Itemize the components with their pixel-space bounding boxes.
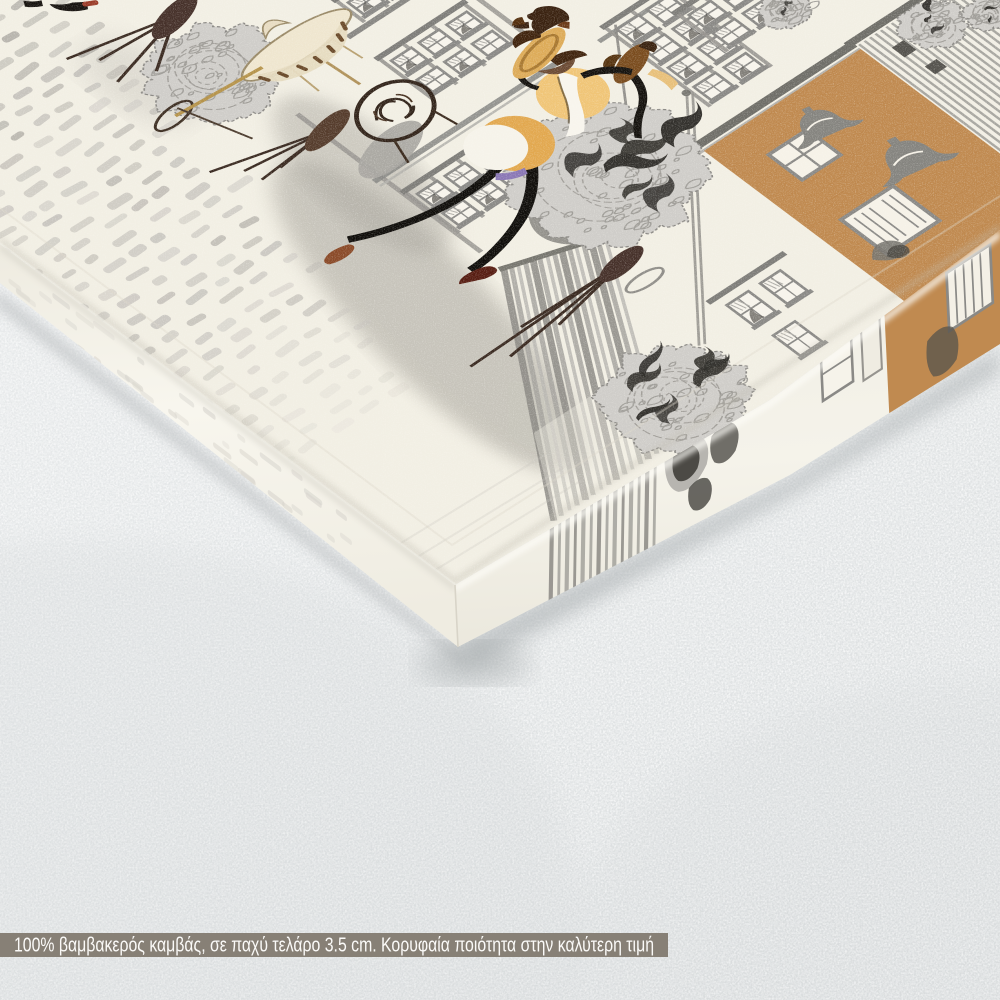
svg-text:100% βαμβακερός καμβάς, σε παχ: 100% βαμβακερός καμβάς, σε παχύ τελάρο 3… (14, 935, 654, 957)
